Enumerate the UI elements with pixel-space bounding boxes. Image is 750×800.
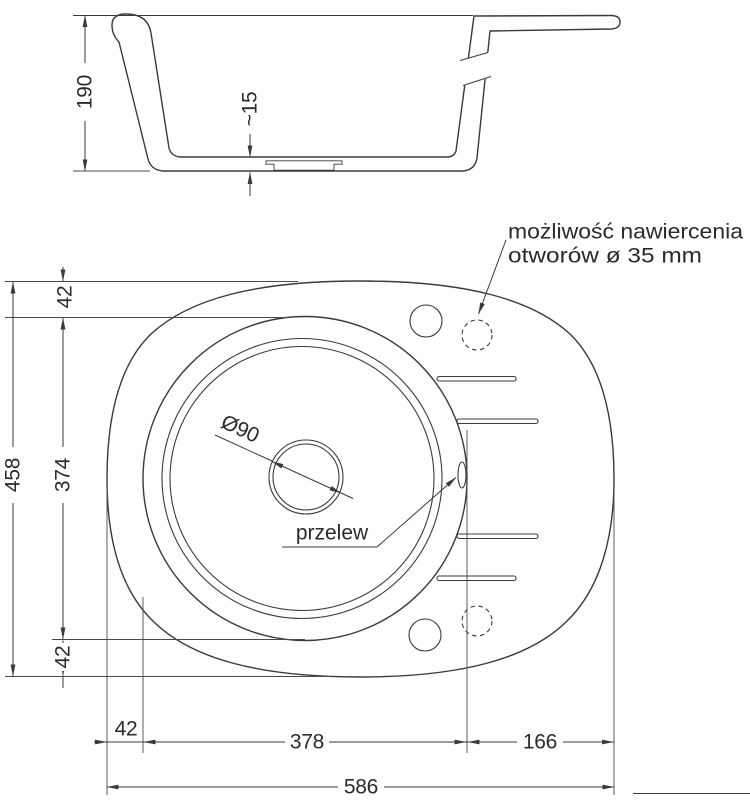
drill-note-line1: możliwość nawiercenia	[508, 221, 743, 244]
bowl-rim-circle	[162, 339, 442, 619]
sink-outline-oval	[107, 281, 614, 677]
faucet-hole-bottom	[409, 619, 441, 651]
drain-diameter-label: Ø90	[218, 410, 263, 447]
drainer-groove	[437, 576, 516, 581]
faucet-hole-top	[410, 305, 442, 337]
dim-offset-bottom-label: 42	[52, 646, 75, 669]
overflow-label: przelew	[296, 522, 369, 545]
dim-offset-top-label: 42	[54, 286, 77, 309]
dim-wing-width-label: 166	[523, 731, 557, 754]
dim-bowl-length-label: 374	[52, 457, 75, 492]
drill-note-leader-line	[479, 240, 507, 314]
bowl-inner-circle	[170, 347, 434, 611]
drain-recess	[266, 161, 342, 170]
overflow-leader-line	[377, 478, 456, 548]
drill-note-line2: otworów ø 35 mm	[508, 245, 702, 268]
drawing-canvas: 190 ~15 Ø90 przelew	[0, 0, 750, 800]
drain-dim-line	[272, 462, 341, 494]
dim-bowl-width-label: 378	[290, 731, 324, 754]
sink-technical-drawing: 190 ~15 Ø90 przelew	[0, 0, 750, 800]
drainer-groove	[457, 419, 538, 424]
dim-offset-left-label: 42	[115, 718, 138, 741]
bowl-outer-circle	[143, 317, 467, 641]
plan-view: Ø90 przelew możliwość nawiercenia otworó…	[107, 221, 743, 678]
optional-hole-top-dashed	[462, 320, 492, 350]
dim-thickness-label: ~15	[239, 92, 262, 127]
drainer-groove	[437, 377, 516, 382]
overflow-slot	[458, 462, 466, 488]
plan-dimensions: 458 374 42 42 42 378 166 586	[2, 267, 750, 799]
section-view: 190 ~15	[73, 14, 620, 196]
dim-total-length-label: 458	[2, 458, 25, 492]
overflow-section-gap	[459, 52, 492, 86]
sink-section-profile	[112, 14, 620, 171]
dim-depth-label: 190	[74, 75, 97, 109]
drainer-groove	[457, 534, 538, 539]
dim-total-width-label: 586	[344, 776, 378, 799]
drain-dim-extension	[341, 493, 353, 499]
optional-hole-bottom-dashed	[462, 606, 492, 636]
